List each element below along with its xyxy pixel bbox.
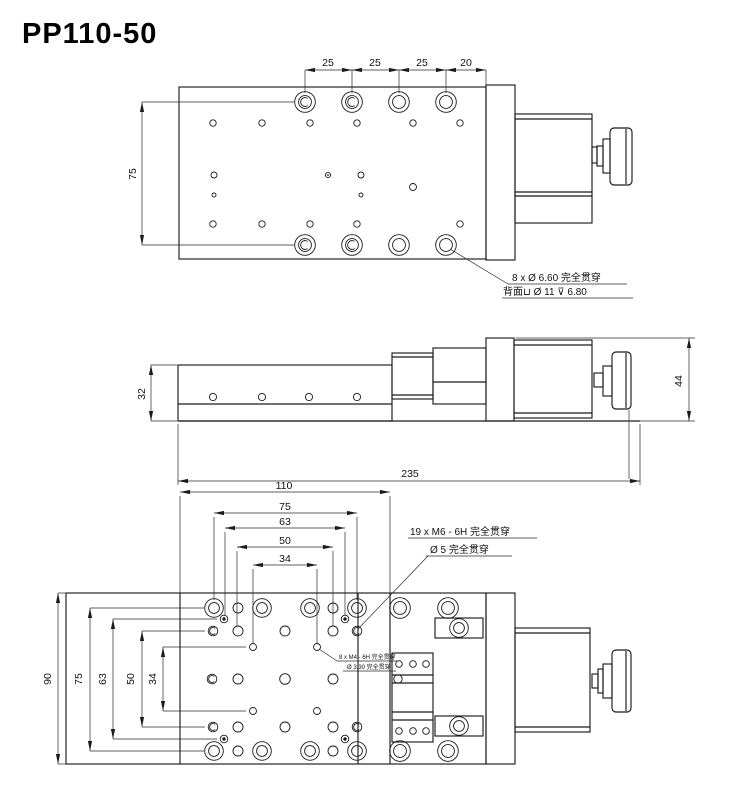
hand-knob-side	[594, 352, 631, 409]
mount-tab-lower	[435, 716, 483, 736]
motor-flange-bottom	[486, 593, 515, 764]
side-235-dimension: 235	[178, 424, 640, 485]
bottom-view: 110 75 63 50 34	[42, 480, 631, 764]
top-view-body	[179, 85, 632, 260]
callout-m6-line1: 19 x M6 - 6H 完全贯穿	[410, 525, 510, 538]
top-view: 25 25 25 20 75 8 x Ø 6.60 完全贯穿 背面⊔ Ø 11 …	[127, 57, 633, 298]
motor-flange-side	[486, 338, 514, 421]
dim-v75: 75	[73, 673, 85, 685]
motor-body-side	[514, 340, 592, 418]
side-44-dimension: 44	[516, 338, 695, 421]
mount-tab-upper	[435, 618, 483, 638]
stage-body	[178, 365, 392, 421]
motor-body-bottom	[515, 628, 590, 732]
callout-m4-line2: Ø 3.30 完全贯穿	[347, 663, 391, 671]
dim-75-bottom: 75	[279, 501, 291, 513]
dim-90: 90	[42, 673, 54, 685]
bearing-carriage	[392, 653, 433, 742]
dim-25-b: 25	[369, 57, 381, 69]
top-view-holes	[210, 92, 463, 256]
dim-20: 20	[460, 57, 472, 69]
bearing-block	[392, 353, 433, 399]
dim-44: 44	[673, 375, 685, 387]
motor-body	[515, 114, 592, 196]
dim-25-a: 25	[322, 57, 334, 69]
hand-knob-bottom	[592, 650, 631, 712]
dim-v63: 63	[97, 673, 109, 685]
side-view: 32 44 235	[136, 338, 695, 485]
thread-callout-m6: 19 x M6 - 6H 完全贯穿 Ø 5 完全贯穿	[358, 525, 537, 629]
dim-110: 110	[276, 480, 293, 492]
bottom-vertical-dimensions: 90 75 63 50 34	[42, 593, 246, 764]
top-75-dimension: 75	[127, 102, 294, 245]
cad-drawing: 25 25 25 20 75 8 x Ø 6.60 完全贯穿 背面⊔ Ø 11 …	[0, 0, 750, 793]
dim-75-top: 75	[127, 168, 139, 180]
bottom-view-holes	[205, 598, 469, 762]
side-32-dimension: 32	[136, 365, 177, 421]
callout-m6-line2: Ø 5 完全贯穿	[430, 543, 489, 556]
drawing-sheet: PP110-50	[0, 0, 750, 793]
callout-top-line2: 背面⊔ Ø 11 ⊽ 6.80	[503, 285, 587, 298]
hand-knob	[592, 128, 632, 185]
dim-63: 63	[279, 516, 291, 528]
callout-m4-line1: 8 x M4 - 6H 完全贯穿	[339, 653, 396, 661]
callout-top-line1: 8 x Ø 6.60 完全贯穿	[512, 271, 601, 284]
dim-v50: 50	[125, 673, 137, 685]
table-plate-outline	[179, 87, 486, 259]
dim-v34: 34	[147, 673, 159, 685]
dim-34: 34	[279, 553, 291, 565]
coupling-housing	[433, 348, 486, 404]
dim-235: 235	[401, 468, 419, 480]
dim-32: 32	[136, 388, 148, 400]
motor-flange	[486, 85, 515, 260]
dim-25-c: 25	[416, 57, 428, 69]
side-view-body	[178, 338, 640, 479]
motor-terminal-box	[515, 196, 592, 223]
dim-50: 50	[279, 535, 291, 547]
top-pitch-dimension: 25 25 25 20	[305, 57, 486, 93]
counterbore-callout: 8 x Ø 6.60 完全贯穿 背面⊔ Ø 11 ⊽ 6.80	[450, 249, 633, 298]
